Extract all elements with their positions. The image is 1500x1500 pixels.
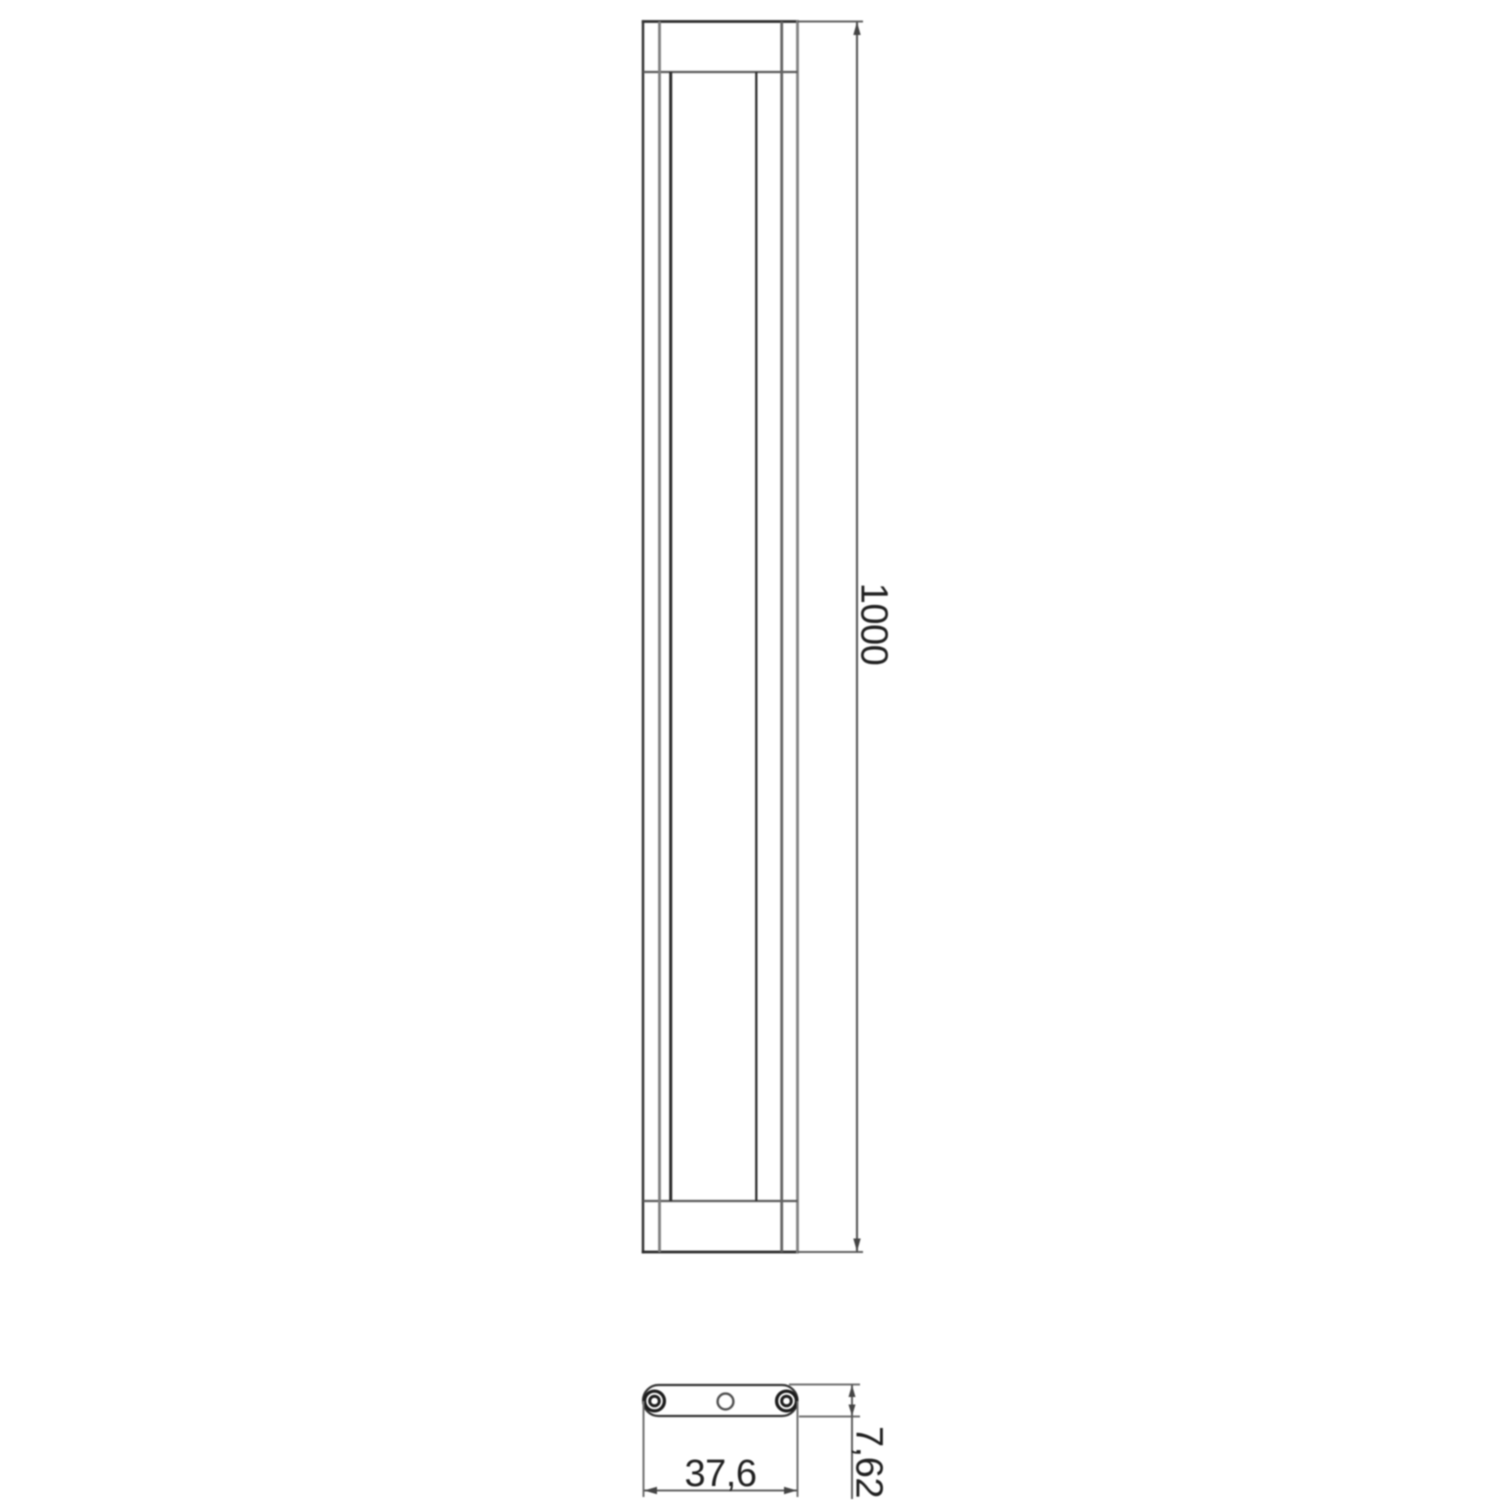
svg-text:37,6: 37,6 — [685, 1453, 757, 1495]
svg-text:7,62: 7,62 — [848, 1426, 890, 1498]
svg-text:1000: 1000 — [853, 583, 895, 666]
